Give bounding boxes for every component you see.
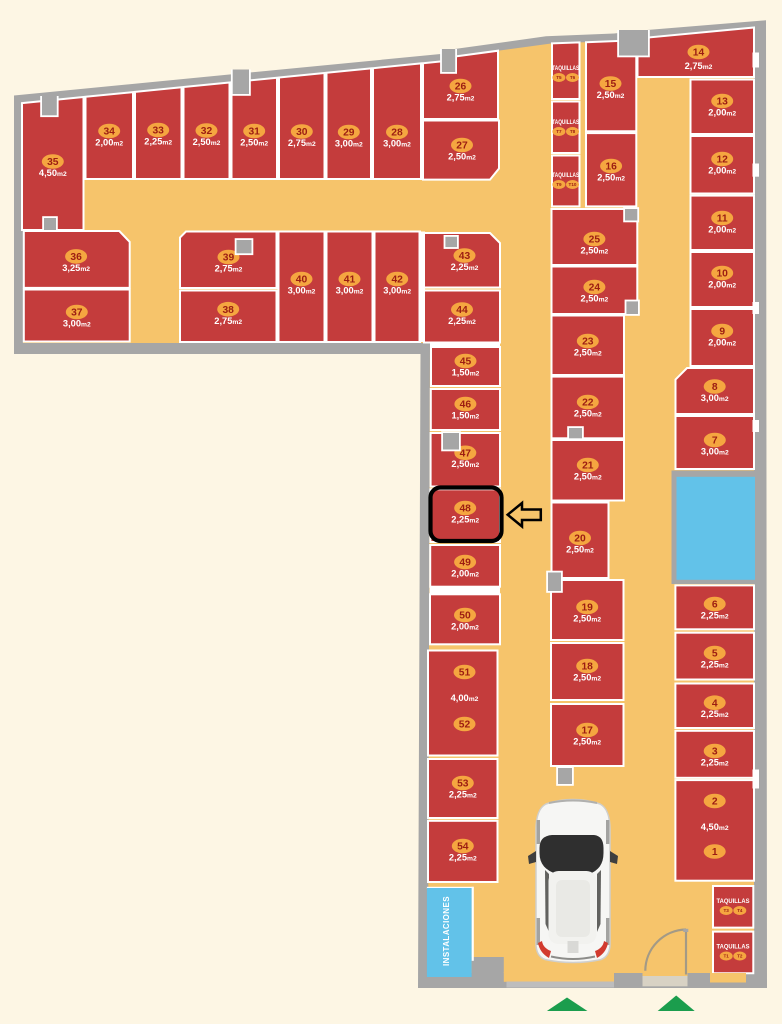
svg-text:6: 6 [712,600,718,611]
svg-text:49: 49 [459,558,471,569]
svg-text:22: 22 [582,398,594,409]
svg-text:10: 10 [716,269,728,280]
svg-text:9: 9 [719,327,725,338]
svg-text:11: 11 [717,214,728,225]
svg-text:34: 34 [103,127,115,138]
svg-text:36: 36 [70,252,82,263]
svg-text:37: 37 [71,308,83,319]
svg-text:42: 42 [391,275,403,286]
svg-text:31: 31 [248,127,260,138]
svg-text:15: 15 [605,79,617,90]
svg-text:2: 2 [712,797,718,808]
svg-text:45: 45 [460,357,472,368]
svg-text:TAQUILLAS: TAQUILLAS [552,120,579,126]
svg-text:T6: T6 [570,75,576,80]
svg-text:20: 20 [574,534,586,545]
svg-text:4: 4 [712,698,718,709]
svg-text:50: 50 [459,611,471,622]
svg-text:44: 44 [456,305,468,316]
svg-text:TAQUILLAS: TAQUILLAS [717,945,750,951]
svg-text:18: 18 [581,662,593,673]
svg-text:23: 23 [582,337,594,348]
svg-text:27: 27 [456,141,468,152]
svg-text:46: 46 [460,400,472,411]
svg-text:25: 25 [589,235,601,246]
svg-text:8: 8 [712,382,718,393]
svg-text:43: 43 [459,251,471,262]
svg-text:13: 13 [716,97,728,108]
svg-text:30: 30 [296,127,308,138]
svg-text:3: 3 [712,747,718,758]
svg-text:19: 19 [581,603,593,614]
svg-text:7: 7 [712,436,718,447]
svg-text:16: 16 [605,162,617,173]
svg-text:T4: T4 [737,908,743,913]
svg-text:52: 52 [459,720,471,731]
svg-text:INSTALACIONES: INSTALACIONES [442,896,451,966]
svg-text:29: 29 [343,128,355,139]
svg-text:21: 21 [582,461,594,472]
svg-text:33: 33 [152,126,164,137]
svg-text:54: 54 [457,842,469,853]
svg-text:12: 12 [716,155,728,166]
svg-text:35: 35 [47,157,59,168]
svg-text:53: 53 [457,779,469,790]
svg-text:24: 24 [589,283,601,294]
svg-text:1: 1 [712,847,718,858]
svg-text:T10: T10 [569,182,577,187]
svg-text:T7: T7 [556,129,562,134]
svg-text:41: 41 [344,275,356,286]
svg-text:TAQUILLAS: TAQUILLAS [552,66,579,72]
svg-text:T5: T5 [556,75,562,80]
svg-text:T3: T3 [724,908,730,913]
svg-text:32: 32 [201,126,213,137]
svg-text:39: 39 [223,253,235,264]
svg-text:17: 17 [581,726,593,737]
svg-text:TAQUILLAS: TAQUILLAS [717,899,750,905]
svg-text:40: 40 [296,275,308,286]
svg-text:T8: T8 [570,129,576,134]
svg-text:T1: T1 [724,954,730,959]
svg-text:T9: T9 [556,182,562,187]
svg-text:47: 47 [460,449,472,460]
svg-text:48: 48 [459,504,471,515]
svg-text:28: 28 [391,128,403,139]
svg-text:51: 51 [459,668,471,679]
svg-text:26: 26 [455,82,467,93]
svg-text:14: 14 [693,48,705,59]
svg-text:5: 5 [712,649,718,660]
svg-text:T2: T2 [737,954,743,959]
svg-text:38: 38 [222,305,234,316]
svg-text:TAQUILLAS: TAQUILLAS [552,173,579,179]
